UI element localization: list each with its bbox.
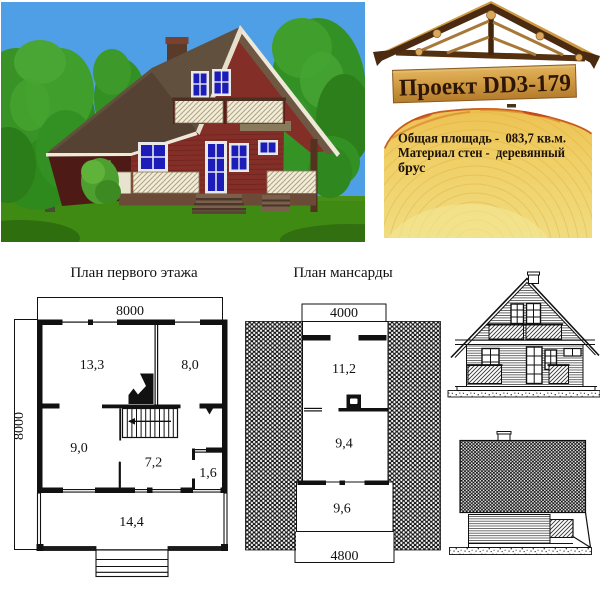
svg-text:Материал стен - деревянный: Материал стен - деревянный: [398, 146, 565, 161]
svg-text:4800: 4800: [331, 549, 359, 564]
svg-text:8,0: 8,0: [181, 358, 199, 373]
svg-text:4000: 4000: [330, 306, 358, 321]
svg-text:14,4: 14,4: [119, 515, 144, 530]
svg-text:План первого этажа: План первого этажа: [70, 265, 198, 281]
svg-text:брус: брус: [398, 161, 425, 176]
svg-text:План мансарды: План мансарды: [293, 265, 392, 281]
svg-text:9,6: 9,6: [333, 502, 351, 517]
svg-text:8000: 8000: [116, 304, 144, 319]
svg-text:1,6: 1,6: [199, 466, 217, 481]
svg-text:7,2: 7,2: [145, 456, 163, 471]
svg-text:9,0: 9,0: [70, 441, 88, 456]
svg-text:Проект DD3-179: Проект DD3-179: [399, 70, 572, 101]
svg-text:8000: 8000: [12, 412, 27, 440]
svg-text:11,2: 11,2: [332, 362, 356, 377]
svg-text:Общая площадь - 083,7 кв.м.: Общая площадь - 083,7 кв.м.: [398, 132, 566, 147]
svg-text:9,4: 9,4: [335, 437, 353, 452]
svg-text:13,3: 13,3: [80, 358, 105, 373]
